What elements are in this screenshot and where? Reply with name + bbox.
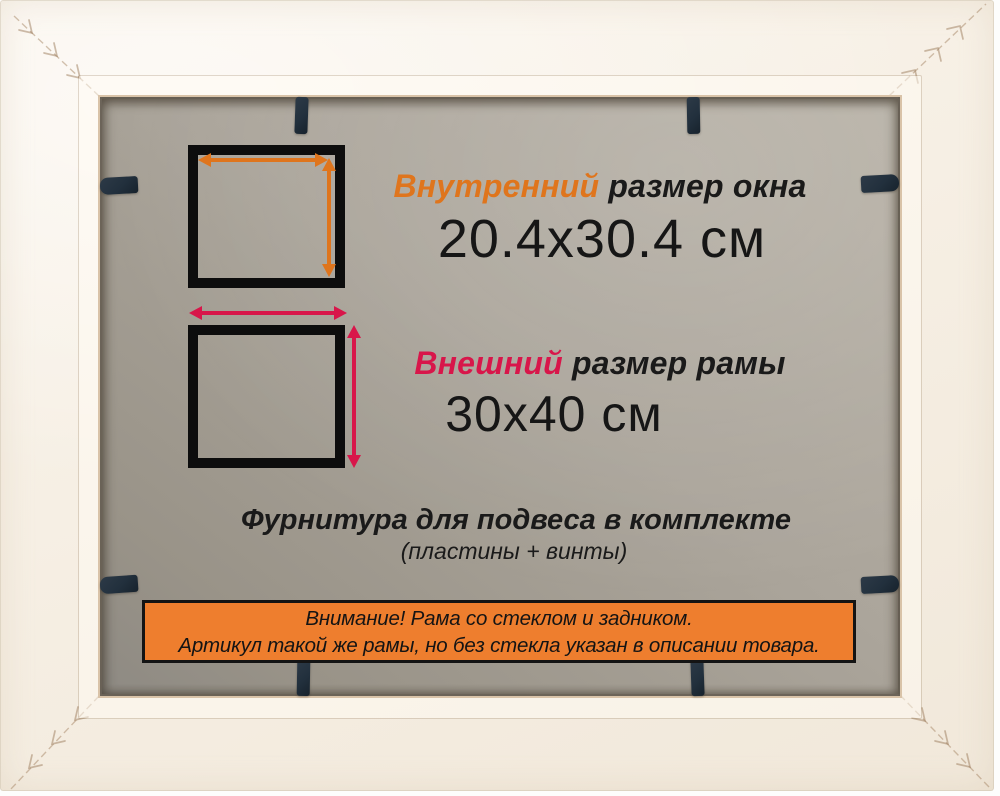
inner-height-arrow-icon — [321, 158, 337, 277]
outer-size-title-rest: размер рамы — [572, 345, 786, 381]
product-photo: Внутренний размер окна 20.4x30.4 см Внеш… — [0, 0, 1000, 796]
inner-size-value: 20.4x30.4 см — [438, 208, 766, 270]
flex-clip-bottom-left-icon — [297, 659, 311, 696]
inner-size-title-accent: Внутренний — [393, 168, 599, 204]
outer-frame-diagram-square — [188, 325, 345, 468]
flex-clip-left-lower-icon — [99, 575, 138, 595]
flex-clip-right-lower-icon — [861, 575, 900, 594]
flex-clip-right-upper-icon — [861, 174, 900, 193]
hardware-note-line2: (пластины + винты) — [401, 538, 628, 565]
flex-clip-top-left-icon — [294, 97, 308, 134]
flex-clip-left-upper-icon — [100, 176, 139, 195]
outer-width-arrow-icon — [189, 305, 347, 321]
inner-size-title-rest: размер окна — [608, 168, 806, 204]
flex-clip-top-right-icon — [687, 97, 701, 134]
hardware-note-line1: Фурнитура для подвеса в комплекте — [241, 504, 791, 537]
inner-size-title: Внутренний размер окна — [393, 168, 806, 205]
notice-line1: Внимание! Рама со стеклом и задником. — [305, 606, 692, 631]
outer-size-title-accent: Внешний — [414, 345, 563, 381]
flex-clip-bottom-right-icon — [690, 659, 704, 696]
outer-size-value: 30x40 см — [445, 385, 663, 443]
notice-line2: Артикул такой же рамы, но без стекла ука… — [178, 633, 819, 658]
outer-size-title: Внешний размер рамы — [414, 345, 785, 382]
inner-width-arrow-icon — [198, 152, 328, 168]
outer-height-arrow-icon — [346, 325, 362, 468]
notice-banner: Внимание! Рама со стеклом и задником. Ар… — [142, 600, 856, 663]
